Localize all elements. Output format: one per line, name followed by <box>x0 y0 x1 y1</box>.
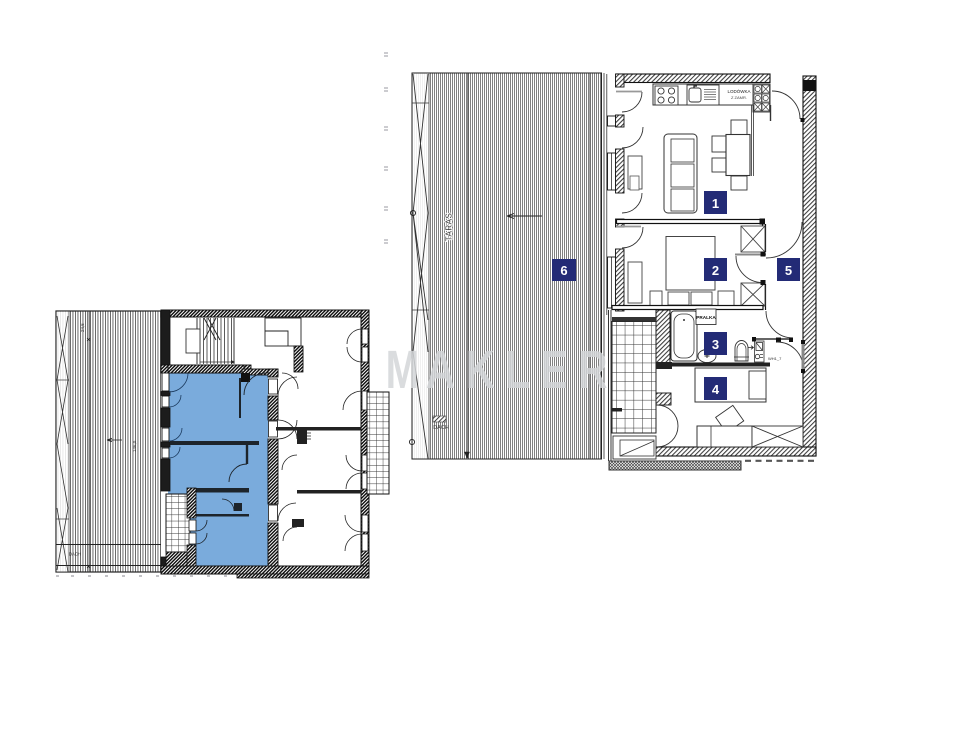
svg-text:M: M <box>386 340 419 400</box>
svg-text:A: A <box>426 340 455 400</box>
svg-text:L: L <box>506 340 531 400</box>
svg-text:Z ZAMR.: Z ZAMR. <box>731 95 747 100</box>
svg-text:5: 5 <box>785 263 792 278</box>
svg-text:TARAS: TARAS <box>445 213 454 242</box>
svg-text:2: 2 <box>712 263 719 278</box>
svg-text:1: 1 <box>712 196 719 211</box>
svg-text:PRALKA: PRALKA <box>696 315 716 320</box>
svg-text:24,5: 24,5 <box>80 323 85 332</box>
svg-text:146,0: 146,0 <box>132 440 137 452</box>
svg-text:K: K <box>466 340 495 400</box>
svg-text:DACH: DACH <box>69 552 81 557</box>
svg-text:4: 4 <box>712 382 720 397</box>
svg-text:WH1_7: WH1_7 <box>768 356 782 361</box>
svg-text:LODÓWKA: LODÓWKA <box>727 88 750 94</box>
svg-text:E: E <box>541 340 568 400</box>
svg-text:R: R <box>579 340 608 400</box>
svg-text:DACH: DACH <box>433 425 449 431</box>
svg-text:3: 3 <box>712 337 719 352</box>
svg-text:6: 6 <box>560 263 567 278</box>
